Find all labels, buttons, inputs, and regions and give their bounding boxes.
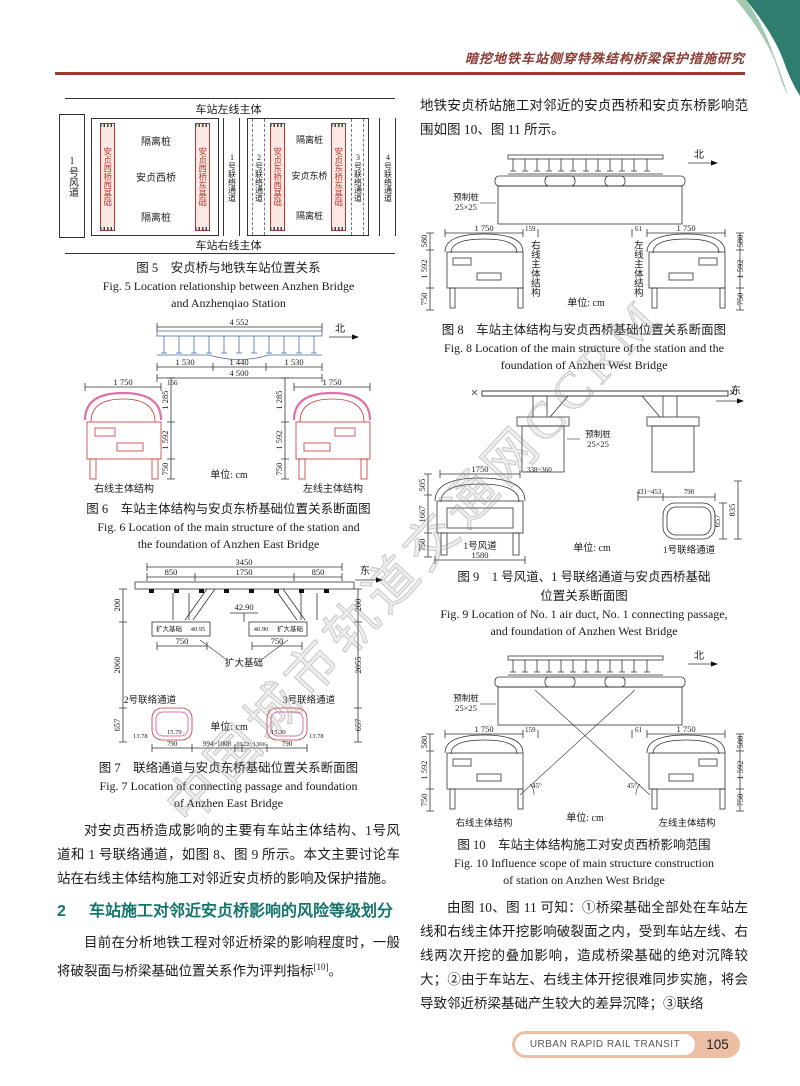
dim: 1750 [472,464,489,474]
dim: 1 285 [160,390,170,409]
caption-zh: 位置关系断面图 [420,587,748,606]
dim: 750 [160,463,170,476]
angle-label: 45° [627,782,637,790]
foundation-ww: 安贞西桥西基础 [100,123,115,231]
precast-size: 25×25 [587,439,609,449]
dim: 750 [735,293,745,306]
dim: 850 [312,567,325,577]
dim: 657 [712,515,722,528]
dim: 61 [635,726,643,734]
left-column: 车站左线主体 1号风道 安贞西桥西基础 隔离桩 安贞西桥 隔离桩 安贞西桥东基础… [57,96,400,984]
dim: 790 [282,740,293,748]
elevation: 40.90 [254,626,269,633]
dim: 580 [419,235,429,248]
caption-en: of station on Anzhen West Bridge [420,872,748,889]
section-heading: 2 车站施工对邻近安贞桥影响的风险等级划分 [57,899,400,925]
body-paragraph: 由图 10、图 11 可知：①桥梁基础全部处在车站左线和右线主体开挖影响破裂面之… [420,896,748,1016]
found-center-label: 扩大基础 [225,657,263,669]
dim: 580 [735,235,745,248]
dim: 1 592 [419,259,429,278]
dim: 1 592 [419,760,429,779]
figure-7: 3450 850 1750 850 东 42.90 扩大基础 40.95 40.… [57,560,400,756]
figure-8: 北 预制桩 25×25 1 750 159 61 1 750 580 1 592… [420,146,748,318]
figure-10: 北 预制桩 25×25 1 750 159 61 1 750 580 1 592… [420,647,748,833]
dim: 1 592 [160,430,170,449]
dim: 4 552 [229,317,248,327]
paper-page: 暗挖地铁车站侧穿特殊结构桥梁保护措施研究 中国城市轨道交通网CCRM 车站左线主… [0,0,800,1086]
precast-size: 25×25 [455,703,477,713]
dim: 1322~1366 [236,741,266,748]
page-number: 105 [695,1031,740,1058]
isolation-label: 隔离桩 [121,209,191,224]
dim: 1 285 [274,390,284,409]
caption-en: Fig. 6 Location of the main structure of… [57,519,400,536]
dim: 657 [353,719,363,732]
wind-duct-1: 1号风道 [59,114,85,238]
dim: 657 [112,719,122,732]
caption-en: and foundation of Anzhen West Bridge [420,623,748,640]
dim: 4 500 [229,368,248,378]
dim: 156 [167,379,178,387]
dim: 505 [417,479,427,492]
precast-label: 预制桩 [585,429,611,439]
passage-3: 3号联络通道 [351,119,364,235]
dim: 750 [176,636,189,646]
dim: 790 [684,488,695,496]
dim: 1 592 [735,760,745,779]
dim: 790 [167,740,178,748]
unit-label: 单位: cm [210,720,248,733]
dim: 1 592 [274,430,284,449]
body-paragraph: 目前在分析地铁工程对邻近桥梁的影响程度时，一般将破裂面与桥梁基础位置关系作为评判… [57,931,400,984]
figure-9-caption: 图 9 1 号风道、1 号联络通道与安贞西桥基础 位置关系断面图 Fig. 9 … [420,568,748,640]
precast-size: 25×25 [455,202,477,212]
dim: 200 [112,599,122,612]
dim: 431~453 [637,488,662,496]
figure-8-caption: 图 8 车站主体结构与安贞西桥基础位置关系断面图 Fig. 8 Location… [420,321,748,374]
dim: 1 750 [322,377,341,387]
right-line-label: 右线主体结构 [528,240,539,297]
paragraph-text: 。 [329,964,343,979]
caption-en: Fig. 8 Location of the main structure of… [420,340,748,357]
caption-zh: 图 10 车站主体结构施工对安贞西桥影响范围 [420,836,748,855]
dim: 1580 [472,550,489,560]
caption-en: Fig. 10 Influence scope of main structur… [420,855,748,872]
precast-label: 预制桩 [453,192,479,202]
dim: 159 [525,726,536,734]
figure-7-caption: 图 7 联络通道与安贞东桥基础位置关系断面图 Fig. 7 Location o… [57,759,400,812]
dim: 61 [635,225,643,233]
passage-4: 4号联络通道 [379,118,396,236]
section-number: 2 [57,899,89,925]
corner-ornament [734,0,800,96]
foundation-ew: 安贞东桥西基础 [270,123,285,231]
foundation-we: 安贞西桥东基础 [195,123,210,231]
right-column: 地铁安贞桥站施工对邻近的安贞西桥和安贞东桥影响范围如图 10、图 11 所示。 … [420,94,748,1016]
body-paragraph: 对安贞西桥造成影响的主要有车站主体结构、1号风道和 1 号联络通道，如图 8、图… [57,819,400,891]
dim: 1667 [417,506,427,523]
dim: 159 [525,225,536,233]
unit-label: 单位: cm [566,811,604,824]
dim: 1 750 [676,223,695,233]
running-head: 暗挖地铁车站侧穿特殊结构桥梁保护措施研究 [55,48,745,67]
dim: 13.78 [133,733,148,740]
dim: 750 [274,463,284,476]
unit-label: 单位: cm [567,296,605,309]
paragraph-text: 目前在分析地铁工程对邻近桥梁的影响程度时，一般将破裂面与桥梁基础位置关系作为评判… [57,935,400,979]
north-label: 北 [335,323,345,335]
dim: 750 [419,794,429,807]
caption-zh: 图 7 联络通道与安贞东桥基础位置关系断面图 [57,759,400,778]
dim: 2060 [112,657,122,674]
left-line-label: 左线主体结构 [658,817,715,829]
dim: 13.78 [309,733,324,740]
east-label: 东 [360,564,370,577]
right-line-label: 右线主体结构 [455,817,512,829]
isolation-label: 隔离桩 [288,209,331,222]
section-title: 车站施工对邻近安贞桥影响的风险等级划分 [89,899,400,925]
body-paragraph: 地铁安贞桥站施工对邻近的安贞西桥和安贞东桥影响范围如图 10、图 11 所示。 [420,94,748,142]
dim: 750 [419,293,429,306]
wind-duct-label: 1号风道 [65,156,80,197]
footer-badge: URBAN RAPID RAIL TRANSIT 105 [512,1031,740,1058]
caption-zh: 图 6 车站主体结构与安贞东桥基础位置关系断面图 [57,500,400,519]
angle-label: 45° [532,782,542,790]
passage-1-label: 1号联络通道 [663,544,716,556]
west-bridge-box: 安贞西桥西基础 隔离桩 安贞西桥 隔离桩 安贞西桥东基础 [91,118,219,236]
west-bridge-label: 安贞西桥 [121,169,191,184]
found-label: 扩大基础 [277,624,304,633]
north-label: 北 [694,149,704,161]
dim: 750 [417,539,427,552]
dim: 1 440 [229,357,248,367]
isolation-label: 隔离桩 [288,133,331,146]
unit-label: 单位: cm [210,468,248,481]
figure-6: 4 552 北 1 530 1 440 1 530 4 500 [57,319,400,497]
right-line-label: 右线主体结构 [94,482,154,495]
foundation-ee: 安贞东桥东基础 [331,123,346,231]
dim: 15.79 [167,729,182,736]
dim: 1 750 [474,724,493,734]
caption-en: and Anzhenqiao Station [57,295,400,312]
caption-en: of Anzhen East Bridge [57,795,400,812]
dim: 750 [735,794,745,807]
dim: 15.30 [271,729,286,736]
figure-5-caption: 图 5 安贞桥与地铁车站位置关系 Fig. 5 Location relatio… [57,259,400,312]
caption-zh: 图 5 安贞桥与地铁车站位置关系 [57,259,400,278]
dim: 200 [353,599,363,612]
dim: 1 750 [474,223,493,233]
journal-name: URBAN RAPID RAIL TRANSIT [515,1034,695,1055]
figure-9: 东 预制桩 25×25 1750 338~360 505 1667 750 1号… [420,381,748,565]
dim: 1 750 [113,377,132,387]
dim: 1 530 [175,357,194,367]
dim: 338~360 [527,466,552,474]
unit-label: 单位: cm [573,541,611,554]
caption-zh: 图 8 车站主体结构与安贞西桥基础位置关系断面图 [420,321,748,340]
left-line-label: 左线主体结构 [631,240,642,297]
elevation: 42.90 [234,602,253,612]
dim: 3450 [236,557,253,567]
passage-3-label: 3号联络通道 [283,694,336,706]
caption-en: foundation of Anzhen West Bridge [420,357,748,374]
north-label: 北 [694,650,704,662]
dim: 1 530 [284,357,303,367]
dim: 1750 [236,567,253,577]
dim: 2055 [353,657,363,674]
figure-5: 车站左线主体 1号风道 安贞西桥西基础 隔离桩 安贞西桥 隔离桩 安贞西桥东基础… [57,96,400,256]
east-bridge-box: 2号联络通道 安贞东桥西基础 隔离桩 安贞东桥 隔离桩 安贞东桥东基础 3号联络… [247,118,369,236]
passage-2: 2号联络通道 [252,119,265,235]
citation-mark: [10] [314,962,329,972]
caption-zh: 图 9 1 号风道、1 号联络通道与安贞西桥基础 [420,568,748,587]
station-left-label: 车站左线主体 [57,101,400,117]
figure-6-caption: 图 6 车站主体结构与安贞东桥基础位置关系断面图 Fig. 6 Location… [57,500,400,553]
caption-en: Fig. 7 Location of connecting passage an… [57,778,400,795]
station-right-label: 车站右线主体 [57,237,400,253]
dim: 850 [165,567,178,577]
dim: 1 750 [676,724,695,734]
east-label: 东 [731,384,741,397]
caption-en: Fig. 9 Location of No. 1 air duct, No. 1… [420,606,748,623]
header-rule [55,72,745,75]
caption-en: the foundation of Anzhen East Bridge [57,536,400,553]
caption-en: Fig. 5 Location relationship between Anz… [57,278,400,295]
east-bridge-label: 安贞东桥 [288,169,331,182]
figure-10-caption: 图 10 车站主体结构施工对安贞西桥影响范围 Fig. 10 Influence… [420,836,748,889]
dim: 1 592 [735,259,745,278]
precast-label: 预制桩 [453,693,479,703]
found-label: 扩大基础 [156,624,183,633]
dim: 580 [419,736,429,749]
passage-1: 1号联络通道 [223,118,240,236]
passage-2-label: 2号联络通道 [124,694,177,706]
dim: 994~1008 [203,740,232,748]
dim: 835 [727,504,737,517]
left-line-label: 左线主体结构 [303,482,363,495]
isolation-label: 隔离桩 [121,133,191,148]
elevation: 40.95 [191,626,206,633]
dim: 580 [735,736,745,749]
